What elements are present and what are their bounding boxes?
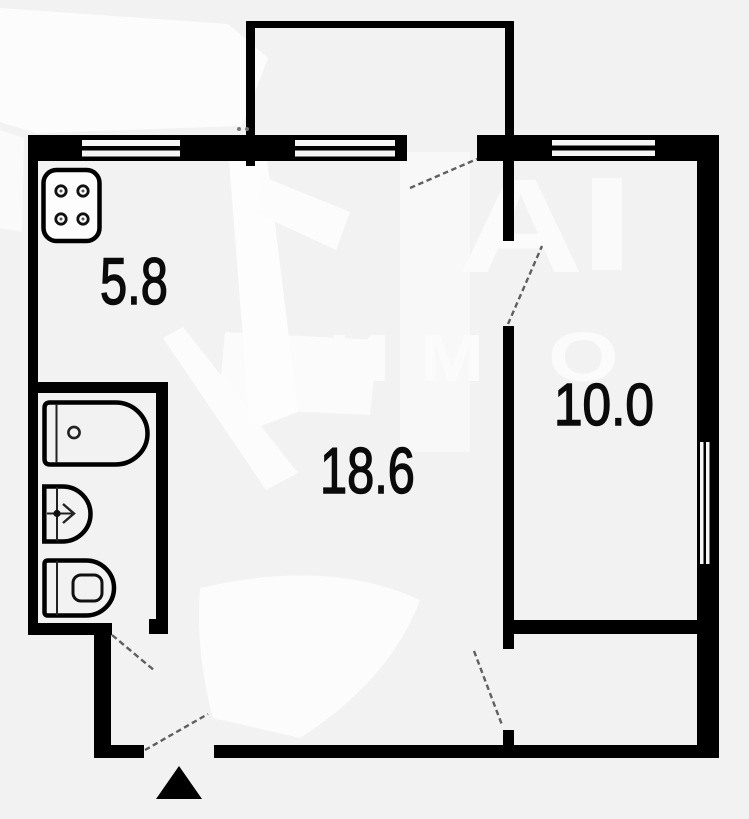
svg-text:5.8: 5.8 — [100, 245, 168, 319]
svg-text:М: М — [420, 322, 484, 396]
svg-text:10.0: 10.0 — [554, 372, 654, 438]
svg-text:18.6: 18.6 — [320, 435, 415, 507]
svg-text:И: И — [328, 322, 391, 396]
svg-text:А: А — [458, 150, 584, 300]
